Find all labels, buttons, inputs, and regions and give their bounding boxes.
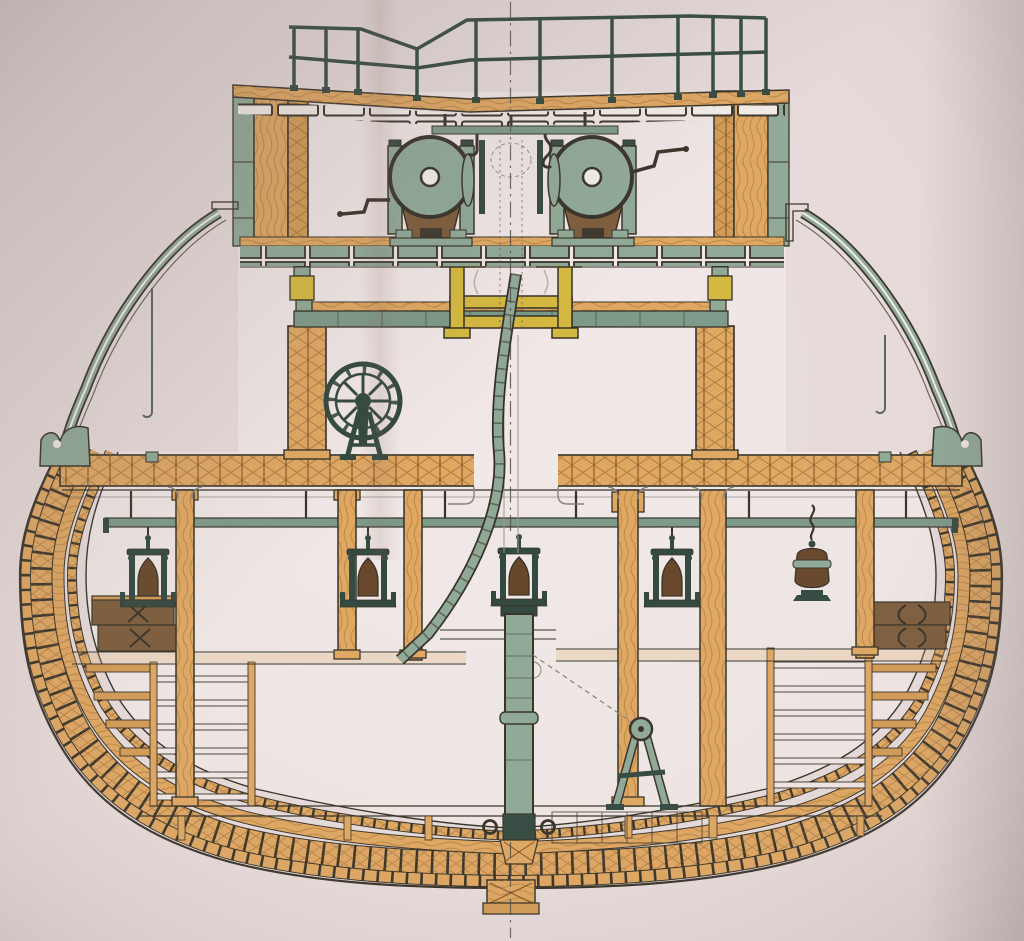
scanned-plate-page: Hand-coloured 19th-century engineering p… — [0, 0, 1024, 941]
page-vignette — [0, 0, 1024, 941]
ship-midship-section-drawing — [0, 0, 1024, 941]
